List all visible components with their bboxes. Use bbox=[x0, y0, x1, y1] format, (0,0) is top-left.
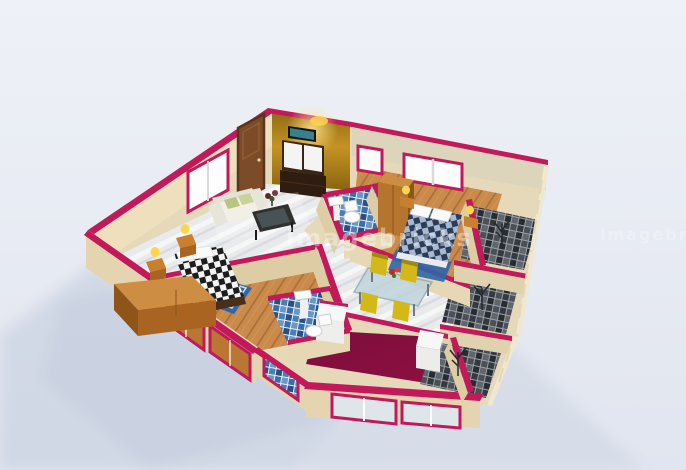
kitchen-fridge bbox=[416, 330, 444, 372]
lamp-glow bbox=[466, 206, 474, 215]
lamp-glow bbox=[181, 224, 190, 234]
spotlight-glow bbox=[310, 116, 328, 126]
watermark-text-partial: imagebricks bbox=[600, 225, 686, 244]
bathroom-window bbox=[358, 146, 382, 174]
floorplan-scene: imagebricks imagebricks bbox=[0, 0, 686, 470]
watermark-text: imagebricks bbox=[286, 224, 473, 252]
floorplan-render: imagebricks imagebricks bbox=[0, 0, 686, 470]
lamp-glow bbox=[151, 247, 160, 257]
lamp-glow bbox=[402, 186, 410, 195]
